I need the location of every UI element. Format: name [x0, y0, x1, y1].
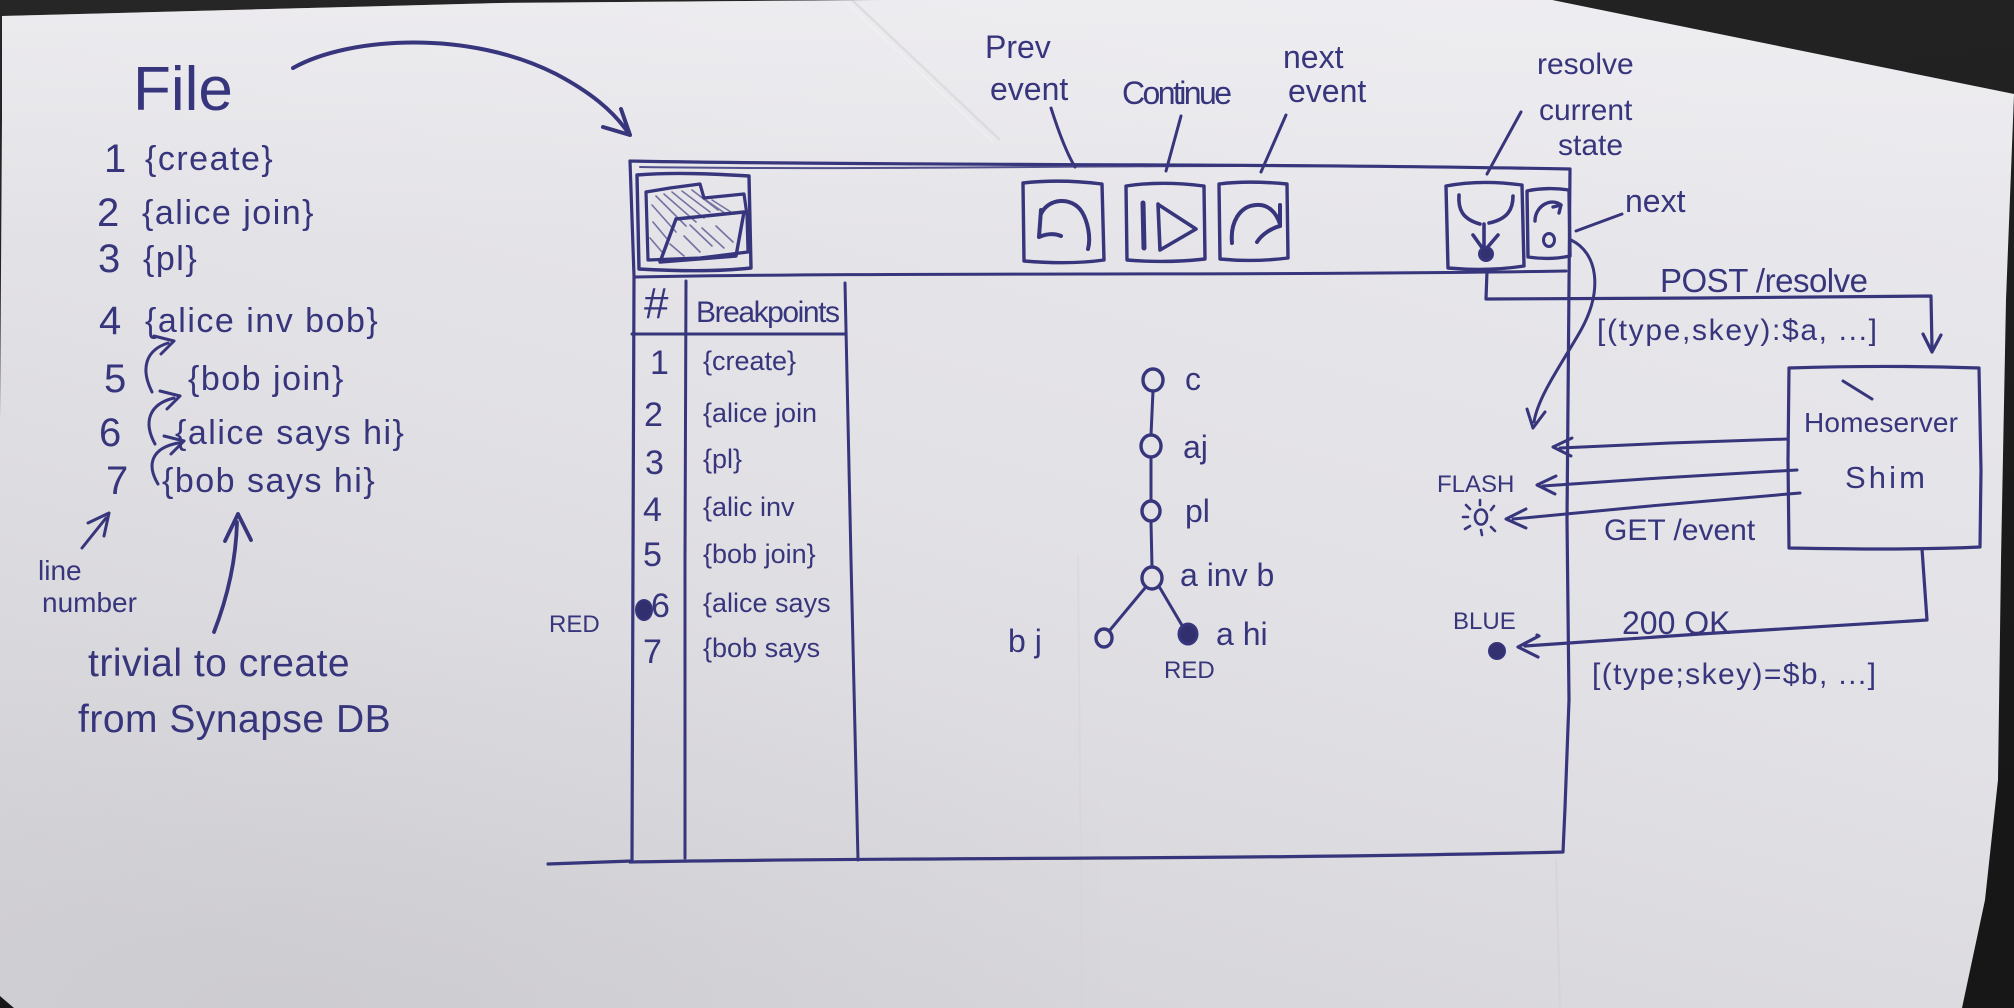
svg-text:6: 6: [99, 411, 121, 455]
svg-text:2: 2: [97, 191, 119, 235]
svg-text:{pl}: {pl}: [143, 240, 198, 278]
svg-text:6: 6: [651, 587, 670, 625]
svg-text:[(type,skey):$a, ...]: [(type,skey):$a, ...]: [1597, 314, 1877, 347]
svg-text:3: 3: [645, 444, 664, 482]
svg-text:#: #: [644, 279, 669, 328]
svg-text:{alice join}: {alice join}: [142, 194, 315, 232]
svg-text:4: 4: [99, 299, 121, 343]
svg-text:{pl}: {pl}: [703, 444, 742, 474]
svg-text:state: state: [1558, 129, 1623, 162]
svg-text:4: 4: [643, 491, 662, 529]
svg-text:{bob says hi}: {bob says hi}: [162, 462, 376, 500]
svg-text:a hi: a hi: [1216, 616, 1268, 652]
svg-text:File: File: [133, 55, 233, 124]
svg-text:{alic inv: {alic inv: [703, 492, 795, 522]
svg-text:next: next: [1625, 183, 1686, 219]
svg-text:200 OK: 200 OK: [1622, 605, 1731, 641]
svg-text:resolve: resolve: [1537, 48, 1634, 81]
svg-text:{alice says hi}: {alice says hi}: [175, 414, 405, 452]
svg-text:FLASH: FLASH: [1437, 471, 1514, 498]
svg-text:{alice join: {alice join: [703, 398, 817, 428]
svg-text:from Synapse DB: from Synapse DB: [78, 698, 391, 741]
svg-text:b j: b j: [1008, 623, 1042, 659]
svg-text:7: 7: [643, 633, 662, 671]
svg-text:5: 5: [643, 536, 662, 574]
svg-text:{create}: {create}: [703, 346, 796, 376]
svg-text:3: 3: [98, 237, 120, 281]
svg-text:aj: aj: [1183, 429, 1208, 465]
svg-text:2: 2: [644, 396, 663, 434]
svg-text:Shim: Shim: [1845, 460, 1925, 495]
svg-text:event: event: [1288, 73, 1366, 109]
svg-text:{alice says: {alice says: [703, 588, 831, 618]
svg-text:Continue: Continue: [1122, 75, 1232, 111]
svg-text:{bob join}: {bob join}: [703, 539, 816, 569]
svg-text:[(type;skey)=$b, ...]: [(type;skey)=$b, ...]: [1592, 658, 1876, 691]
svg-text:next: next: [1283, 39, 1344, 75]
svg-text:pl: pl: [1185, 493, 1210, 529]
svg-text:event: event: [990, 71, 1068, 107]
svg-text:c: c: [1185, 361, 1201, 397]
svg-text:Prev: Prev: [985, 29, 1051, 65]
svg-text:a inv b: a inv b: [1180, 557, 1274, 593]
svg-text:BLUE: BLUE: [1453, 608, 1516, 635]
svg-text:Breakpoints: Breakpoints: [696, 296, 840, 329]
svg-text:line: line: [38, 555, 82, 586]
svg-text:{alice inv bob}: {alice inv bob}: [145, 302, 379, 340]
svg-text:5: 5: [104, 357, 126, 401]
svg-text:GET /event: GET /event: [1604, 514, 1756, 547]
svg-text:trivial to create: trivial to create: [88, 642, 350, 685]
svg-text:current: current: [1539, 94, 1633, 127]
svg-text:1: 1: [650, 344, 669, 382]
svg-text:POST /resolve: POST /resolve: [1660, 262, 1868, 299]
svg-text:RED: RED: [549, 611, 600, 638]
svg-text:1: 1: [104, 137, 126, 181]
svg-text:Homeserver: Homeserver: [1804, 407, 1958, 438]
svg-text:{bob says: {bob says: [703, 633, 820, 663]
svg-text:RED: RED: [1164, 657, 1215, 684]
svg-text:7: 7: [106, 459, 128, 503]
svg-text:number: number: [42, 587, 137, 618]
svg-text:{create}: {create}: [145, 140, 274, 178]
svg-text:{bob join}: {bob join}: [188, 360, 345, 398]
